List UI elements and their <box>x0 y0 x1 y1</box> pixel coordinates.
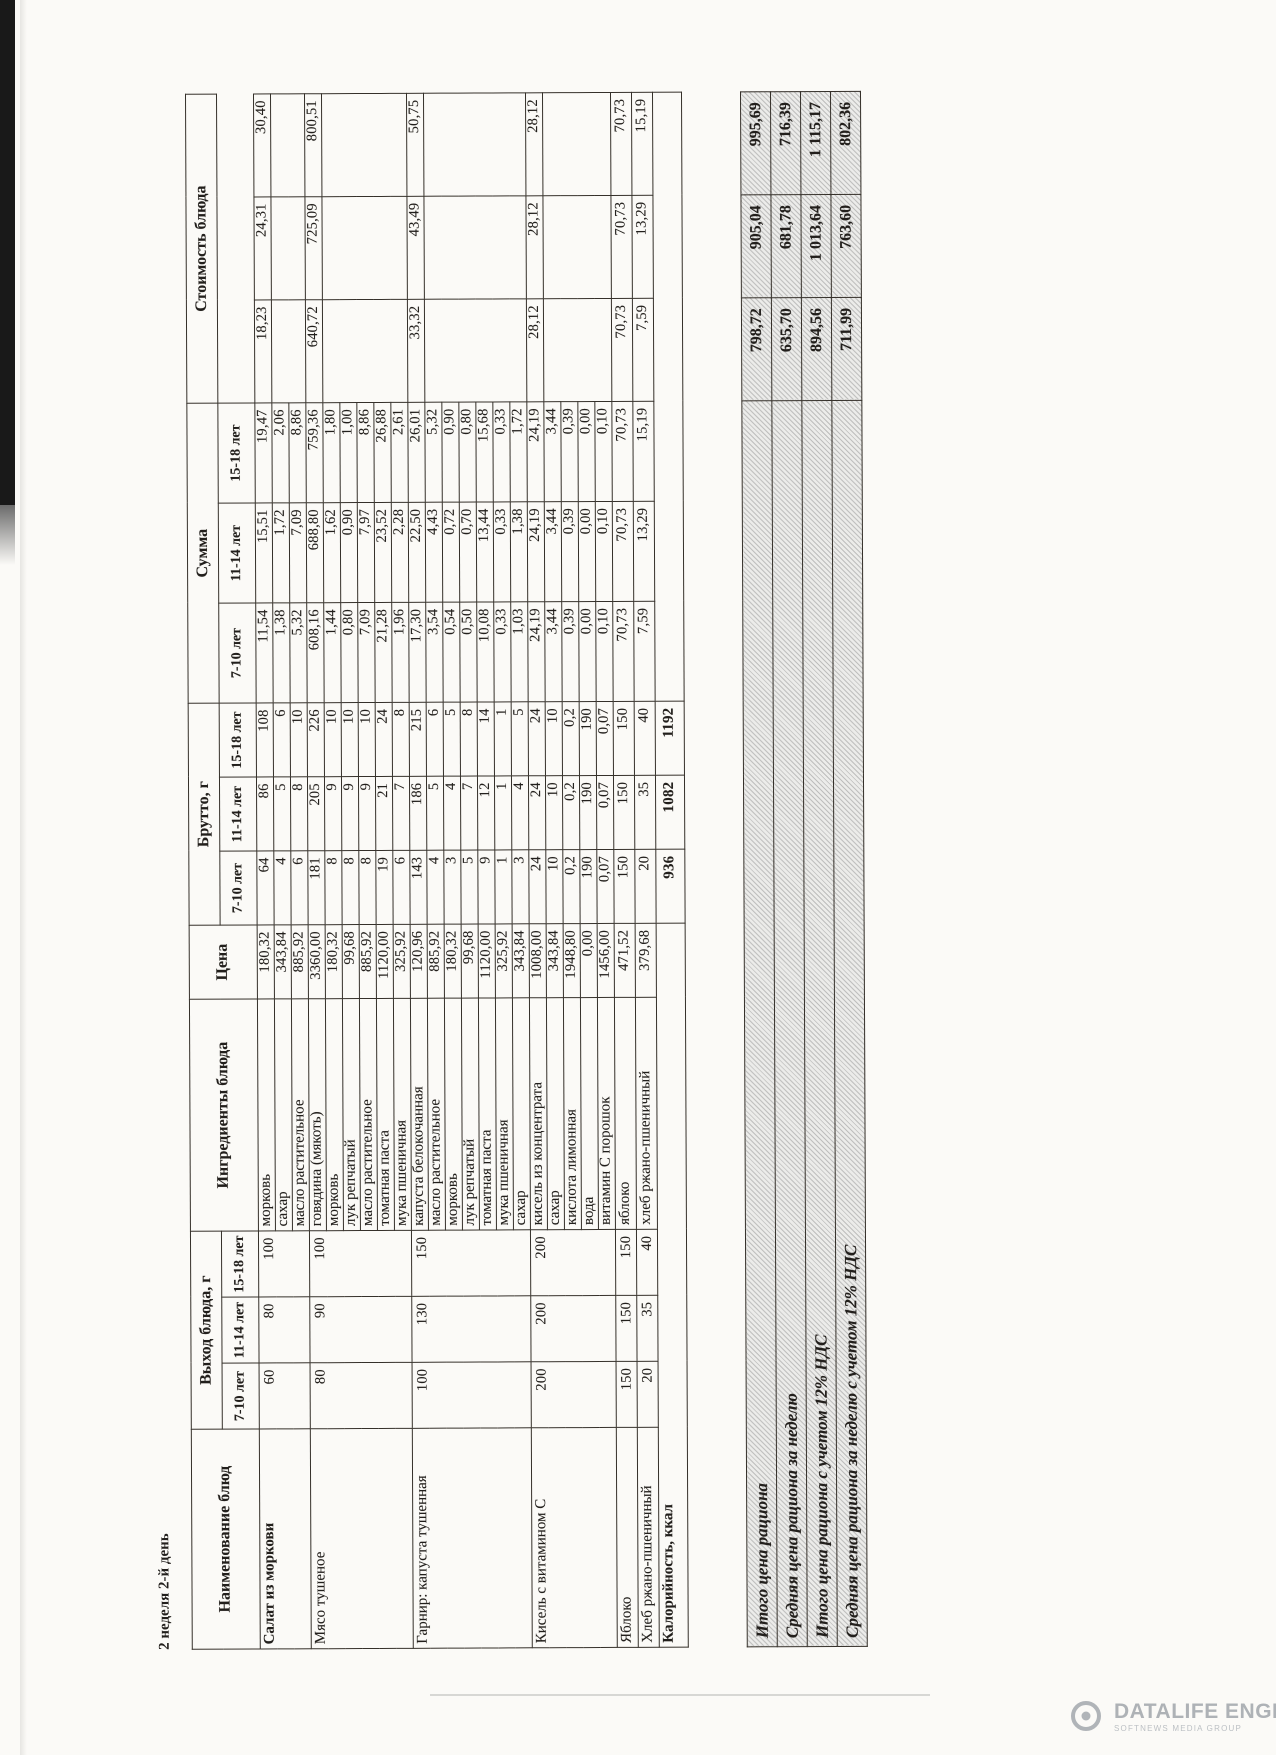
ingredient-name: сахар <box>512 998 530 1230</box>
sum-value: 1,80 <box>323 403 340 503</box>
page-title: 2 неделя 2-й день <box>156 1533 174 1650</box>
col-header-price: Цена <box>189 925 257 999</box>
brutto-value: 5 <box>511 702 528 776</box>
brutto-value: 86 <box>256 777 273 851</box>
sum-value: 22,50 <box>408 502 425 602</box>
cost-empty-cell <box>543 195 611 298</box>
sum-value: 3,44 <box>545 602 562 702</box>
brutto-value: 9 <box>358 776 375 850</box>
ingredient-name: хлеб ржано-пшеничный <box>635 997 657 1229</box>
sum-value: 15,19 <box>633 401 654 501</box>
brutto-value: 10 <box>358 702 375 776</box>
brutto-value: 10 <box>324 703 341 777</box>
ingredient-name: сахар <box>274 999 292 1231</box>
sum-value: 0,10 <box>595 401 612 501</box>
ingredient-name: морковь <box>325 999 343 1231</box>
brutto-value: 1 <box>494 702 511 776</box>
sum-value: 26,01 <box>408 402 425 502</box>
brutto-value: 8 <box>342 851 359 925</box>
sum-value: 2,28 <box>391 502 408 602</box>
yield-value: 200 <box>530 1229 615 1295</box>
sum-value: 24,19 <box>527 502 544 602</box>
yield-value: 100 <box>258 1231 309 1297</box>
cost-value: 70,73 <box>610 92 631 195</box>
sum-value: 7,09 <box>289 503 306 603</box>
calories-row: Калорийность, ккал93610821192 <box>652 92 688 1647</box>
sum-value: 3,54 <box>426 602 443 702</box>
price-value: 1120,00 <box>376 924 393 998</box>
brutto-value: 0,2 <box>562 776 579 850</box>
brutto-value: 14 <box>477 702 494 776</box>
sum-value: 0,70 <box>459 502 476 602</box>
cost-value: 28,12 <box>525 93 542 196</box>
sum-value: 0,33 <box>494 602 511 702</box>
brutto-value: 8 <box>325 851 342 925</box>
sum-value: 1,72 <box>272 503 289 603</box>
yield-value: 80 <box>310 1362 412 1428</box>
sum-value: 70,73 <box>612 501 633 601</box>
summary-value: 711,99 <box>831 297 861 400</box>
watermark-text: DATALIFE ENGINE SOFTNEWS MEDIA GROUP <box>1114 1700 1276 1733</box>
brutto-value: 9 <box>341 777 358 851</box>
yield-value: 40 <box>636 1229 657 1295</box>
brutto-value: 0,07 <box>596 701 613 775</box>
yield-value: 80 <box>259 1297 310 1363</box>
brutto-value: 20 <box>635 849 656 923</box>
price-value: 885,92 <box>427 924 444 998</box>
ingredient-name: яблоко <box>614 997 636 1229</box>
col-header-age: 7-10 лет <box>220 851 257 925</box>
cost-value: 70,73 <box>611 298 632 401</box>
yield-value: 150 <box>411 1230 530 1297</box>
sum-value: 24,19 <box>528 602 545 702</box>
brutto-value: 4 <box>274 851 291 925</box>
brutto-value: 190 <box>579 701 596 775</box>
price-value: 471,52 <box>614 923 635 997</box>
brutto-value: 0,07 <box>596 775 613 849</box>
ingredient-name: томатная паста <box>478 998 496 1230</box>
price-value: 1120,00 <box>478 924 495 998</box>
calories-empty-cell <box>652 92 684 701</box>
col-header-yield-group: Выход блюда, г <box>190 1231 222 1429</box>
brutto-value: 3 <box>444 850 461 924</box>
brutto-value: 0,07 <box>597 849 614 923</box>
yield-value: 150 <box>616 1295 637 1361</box>
ingredient-name: говядина (мякоть) <box>308 999 326 1231</box>
sum-value: 0,33 <box>493 402 510 502</box>
brutto-value: 1 <box>494 776 511 850</box>
brutto-value: 190 <box>579 775 596 849</box>
col-header-age: 7-10 лет <box>222 1363 259 1429</box>
brutto-value: 19 <box>376 850 393 924</box>
calories-label: Калорийность, ккал <box>656 923 688 1647</box>
ingredient-name: морковь <box>444 998 462 1230</box>
sum-value: 5,32 <box>290 603 307 703</box>
sum-value: 608,16 <box>307 603 324 703</box>
price-value: 3360,00 <box>308 925 325 999</box>
sum-value: 1,96 <box>392 602 409 702</box>
sum-value: 688,80 <box>306 503 323 603</box>
brutto-value: 6 <box>393 850 410 924</box>
brutto-value: 108 <box>256 703 273 777</box>
cost-empty-cell <box>270 94 304 197</box>
brutto-value: 150 <box>614 849 635 923</box>
sum-value: 23,52 <box>374 502 391 602</box>
summary-value: 635,70 <box>771 298 801 401</box>
yield-value: 90 <box>310 1296 412 1362</box>
summary-value: 716,39 <box>770 92 800 195</box>
brutto-value: 186 <box>409 776 426 850</box>
price-value: 343,84 <box>512 924 529 998</box>
yield-value: 35 <box>637 1295 658 1361</box>
dish-name: Кисель с витамином С <box>531 1427 617 1647</box>
rotated-menu-sheet: 2 неделя 2-й день Наименование блюд Выхо… <box>140 92 882 1650</box>
summary-value: 802,36 <box>830 91 860 194</box>
sum-value: 0,33 <box>493 502 510 602</box>
brutto-value: 181 <box>308 851 325 925</box>
brutto-value: 12 <box>477 776 494 850</box>
watermark-name: DATALIFE ENGINE <box>1114 1700 1276 1724</box>
scan-edge-fade <box>0 505 15 565</box>
datalife-watermark: DATALIFE ENGINE SOFTNEWS MEDIA GROUP <box>1068 1698 1276 1734</box>
sum-value: 0,00 <box>578 401 595 501</box>
brutto-value: 64 <box>257 851 274 925</box>
sum-value: 0,80 <box>459 402 476 502</box>
price-value: 99,68 <box>461 924 478 998</box>
brutto-value: 6 <box>291 851 308 925</box>
price-value: 343,84 <box>274 925 291 999</box>
cost-empty-cell <box>543 298 611 401</box>
col-header-age: 15-18 лет <box>221 1231 258 1297</box>
ingredient-name: кислота лимонная <box>563 998 581 1230</box>
ingredient-name: кисель из концентрата <box>529 998 547 1230</box>
sum-value: 1,72 <box>510 402 527 502</box>
sum-value: 759,36 <box>306 403 323 503</box>
summary-value: 763,60 <box>831 194 861 297</box>
col-header-age: 11-14 лет <box>219 777 256 851</box>
brutto-value: 21 <box>375 776 392 850</box>
summary-label: Средняя цена рациона за неделю с учетом … <box>832 400 867 1646</box>
watermark-tagline: SOFTNEWS MEDIA GROUP <box>1114 1724 1276 1733</box>
yield-value: 130 <box>412 1296 531 1363</box>
cost-value: 28,12 <box>526 196 543 299</box>
brutto-value: 5 <box>426 776 443 850</box>
brutto-value: 7 <box>392 776 409 850</box>
brutto-value: 10 <box>545 776 562 850</box>
col-header-dish: Наименование блюд <box>191 1429 260 1649</box>
brutto-value: 5 <box>443 702 460 776</box>
price-value: 1008,00 <box>529 924 546 998</box>
sum-value: 7,59 <box>634 601 655 701</box>
sum-value: 0,39 <box>561 402 578 502</box>
sum-value: 3,44 <box>544 402 561 502</box>
brutto-value: 190 <box>580 849 597 923</box>
brutto-value: 3 <box>512 850 529 924</box>
price-value: 885,92 <box>359 924 376 998</box>
ingredient-name: томатная паста <box>376 998 394 1230</box>
sum-value: 1,38 <box>510 502 527 602</box>
cost-empty-cell <box>542 92 610 195</box>
sum-value: 26,88 <box>374 402 391 502</box>
price-value: 0,00 <box>580 923 597 997</box>
brutto-value: 5 <box>273 777 290 851</box>
ingredient-name: морковь <box>257 999 275 1231</box>
ingredient-name: масло растительное <box>427 998 445 1230</box>
brutto-value: 9 <box>324 777 341 851</box>
ingredient-name: мука пшеничная <box>393 998 411 1230</box>
brutto-value: 150 <box>613 775 634 849</box>
datalife-logo-icon <box>1068 1698 1104 1734</box>
cost-empty-cell <box>424 196 526 299</box>
price-value: 343,84 <box>546 924 563 998</box>
summary-value: 995,69 <box>740 92 770 195</box>
cost-value: 43,49 <box>407 196 424 299</box>
scan-edge-artifact <box>0 0 15 505</box>
summary-row: Средняя цена рациона за неделю с учетом … <box>830 91 867 1646</box>
cost-value: 30,40 <box>253 94 270 197</box>
summary-value: 894,56 <box>801 297 831 400</box>
brutto-value: 8 <box>392 702 409 776</box>
sum-value: 1,03 <box>511 602 528 702</box>
sum-value: 5,32 <box>425 402 442 502</box>
yield-value: 100 <box>412 1362 531 1429</box>
price-value: 325,92 <box>495 924 512 998</box>
sum-value: 0,50 <box>460 602 477 702</box>
sum-value: 7,09 <box>358 602 375 702</box>
brutto-value: 35 <box>634 775 655 849</box>
cost-value: 18,23 <box>254 300 271 403</box>
scan-streak-artifact <box>20 0 27 1755</box>
cost-value: 7,59 <box>632 298 653 401</box>
sum-value: 17,30 <box>409 602 426 702</box>
menu-cost-table: Наименование блюд Выход блюда, г Ингреди… <box>185 92 689 1650</box>
sum-value: 1,00 <box>340 402 357 502</box>
brutto-value: 4 <box>511 776 528 850</box>
brutto-value: 0,2 <box>563 850 580 924</box>
brutto-value: 143 <box>410 850 427 924</box>
sum-value: 21,28 <box>375 602 392 702</box>
yield-value: 100 <box>309 1230 411 1296</box>
brutto-value: 40 <box>634 701 655 775</box>
sum-value: 0,00 <box>578 501 595 601</box>
cost-value: 33,32 <box>407 299 424 402</box>
sum-value: 2,06 <box>272 403 289 503</box>
sum-value: 0,10 <box>595 501 612 601</box>
brutto-value: 24 <box>375 702 392 776</box>
brutto-value: 10 <box>341 703 358 777</box>
dish-name: Хлеб ржано-пшеничный <box>637 1427 659 1647</box>
cost-value: 640,72 <box>305 300 322 403</box>
col-header-cost-group: Стоимость блюда <box>185 94 217 403</box>
sum-value: 0,39 <box>561 502 578 602</box>
brutto-value: 10 <box>545 702 562 776</box>
price-value: 180,32 <box>444 924 461 998</box>
sum-value: 11,54 <box>256 603 273 703</box>
brutto-value: 5 <box>461 850 478 924</box>
summary-value: 1 115,17 <box>800 91 830 194</box>
col-header-brutto-group: Брутто, г <box>188 703 220 925</box>
cost-value: 70,73 <box>611 195 632 298</box>
yield-value: 60 <box>259 1363 310 1429</box>
sum-value: 70,73 <box>613 601 634 701</box>
brutto-value: 1 <box>495 850 512 924</box>
price-value: 379,68 <box>635 923 656 997</box>
brutto-value: 226 <box>307 703 324 777</box>
ingredient-name: масло растительное <box>359 998 377 1230</box>
price-value: 180,32 <box>325 925 342 999</box>
cost-value: 800,51 <box>304 94 321 197</box>
cost-empty-cell <box>271 300 305 403</box>
ingredient-name: витамин С порошок <box>597 997 615 1229</box>
col-header-age: 7-10 лет <box>219 603 256 703</box>
sum-value: 0,90 <box>340 503 357 603</box>
sum-value: 19,47 <box>255 403 272 503</box>
brutto-value: 8 <box>359 850 376 924</box>
ingredient-name: капуста белокочанная <box>410 998 428 1230</box>
cost-empty-cell <box>322 196 407 299</box>
sum-value: 1,62 <box>323 503 340 603</box>
sum-value: 0,10 <box>596 601 613 701</box>
ingredient-name: вода <box>580 997 598 1229</box>
brutto-value: 10 <box>290 703 307 777</box>
yield-value: 200 <box>531 1361 616 1427</box>
sum-value: 70,73 <box>612 401 633 501</box>
brutto-value: 24 <box>528 702 545 776</box>
brutto-value: 6 <box>426 702 443 776</box>
price-value: 325,92 <box>393 924 410 998</box>
price-value: 120,96 <box>410 924 427 998</box>
sum-value: 0,54 <box>443 602 460 702</box>
sum-value: 7,97 <box>357 502 374 602</box>
brutto-value: 150 <box>613 701 634 775</box>
sum-value: 15,51 <box>255 503 272 603</box>
cost-value: 15,19 <box>631 92 652 195</box>
sum-value: 0,39 <box>562 602 579 702</box>
calories-value: 936 <box>656 849 685 923</box>
brutto-value: 6 <box>273 703 290 777</box>
col-header-ingredients: Ингредиенты блюда <box>189 999 258 1231</box>
price-value: 1948,80 <box>563 924 580 998</box>
price-value: 1456,00 <box>597 923 614 997</box>
sum-value: 8,86 <box>289 403 306 503</box>
dish-name: Салат из моркови <box>259 1429 311 1649</box>
sum-value: 10,08 <box>477 602 494 702</box>
summary-value: 798,72 <box>741 298 771 401</box>
cost-value: 725,09 <box>305 197 322 300</box>
cost-empty-cell <box>271 197 305 300</box>
brutto-value: 9 <box>478 850 495 924</box>
dish-name: Мясо тушеное <box>310 1428 413 1648</box>
ingredient-name: масло растительное <box>291 999 309 1231</box>
cost-value: 13,29 <box>632 195 653 298</box>
cost-value: 28,12 <box>526 299 543 402</box>
ingredient-name: лук репчатый <box>461 998 479 1230</box>
sum-value: 1,44 <box>324 603 341 703</box>
sum-value: 1,38 <box>273 603 290 703</box>
ingredient-name: сахар <box>546 998 564 1230</box>
brutto-value: 24 <box>528 776 545 850</box>
summary-value: 905,04 <box>741 195 771 298</box>
cost-empty-cell <box>424 299 526 402</box>
sum-value: 3,44 <box>544 502 561 602</box>
sum-value: 0,80 <box>341 603 358 703</box>
col-header-age: 15-18 лет <box>219 703 256 777</box>
sum-value: 8,86 <box>357 402 374 502</box>
brutto-value: 4 <box>427 850 444 924</box>
dish-name: Гарнир: капуста тушенная <box>412 1428 532 1649</box>
cost-empty-cell <box>322 299 407 402</box>
dish-name: Яблоко <box>616 1427 638 1647</box>
sum-value: 2,61 <box>391 402 408 502</box>
cost-value: 50,75 <box>406 93 423 196</box>
ingredient-name: лук репчатый <box>342 999 360 1231</box>
scan-line-artifact <box>430 1694 930 1696</box>
col-header-age: 11-14 лет <box>218 503 255 603</box>
price-value: 180,32 <box>257 925 274 999</box>
sum-value: 24,19 <box>527 402 544 502</box>
price-value: 99,68 <box>342 925 359 999</box>
summary-value: 1 013,64 <box>801 194 831 297</box>
brutto-value: 215 <box>409 702 426 776</box>
brutto-value: 8 <box>290 777 307 851</box>
brutto-value: 205 <box>307 777 324 851</box>
yield-value: 150 <box>616 1361 637 1427</box>
ingredient-name: мука пшеничная <box>495 998 513 1230</box>
yield-value: 150 <box>615 1229 636 1295</box>
summary-value: 681,78 <box>771 195 801 298</box>
sum-value: 0,72 <box>442 502 459 602</box>
sum-value: 0,00 <box>579 601 596 701</box>
calories-value: 1192 <box>655 701 684 775</box>
col-header-sum-group: Сумма <box>187 403 219 703</box>
brutto-value: 7 <box>460 776 477 850</box>
sum-value: 13,29 <box>633 501 654 601</box>
brutto-value: 8 <box>460 702 477 776</box>
cost-empty-cell <box>423 93 525 196</box>
sum-value: 15,68 <box>476 402 493 502</box>
brutto-value: 4 <box>443 776 460 850</box>
brutto-value: 24 <box>529 850 546 924</box>
col-header-age: 11-14 лет <box>222 1297 259 1363</box>
cost-value: 24,31 <box>254 197 271 300</box>
cost-empty-cell <box>321 93 406 196</box>
price-value: 885,92 <box>291 925 308 999</box>
sum-value: 13,44 <box>476 502 493 602</box>
scanned-page: 2 неделя 2-й день Наименование блюд Выхо… <box>0 0 1276 1755</box>
yield-value: 20 <box>637 1361 658 1427</box>
brutto-value: 0,2 <box>562 702 579 776</box>
col-header-age: 15-18 лет <box>218 403 255 503</box>
yield-value: 200 <box>531 1295 616 1361</box>
brutto-value: 10 <box>546 850 563 924</box>
sum-value: 0,90 <box>442 402 459 502</box>
calories-value: 1082 <box>655 775 684 849</box>
ration-summary-table: Итого цена рациона798,72905,04995,69Сред… <box>740 91 868 1648</box>
sum-value: 4,43 <box>425 502 442 602</box>
